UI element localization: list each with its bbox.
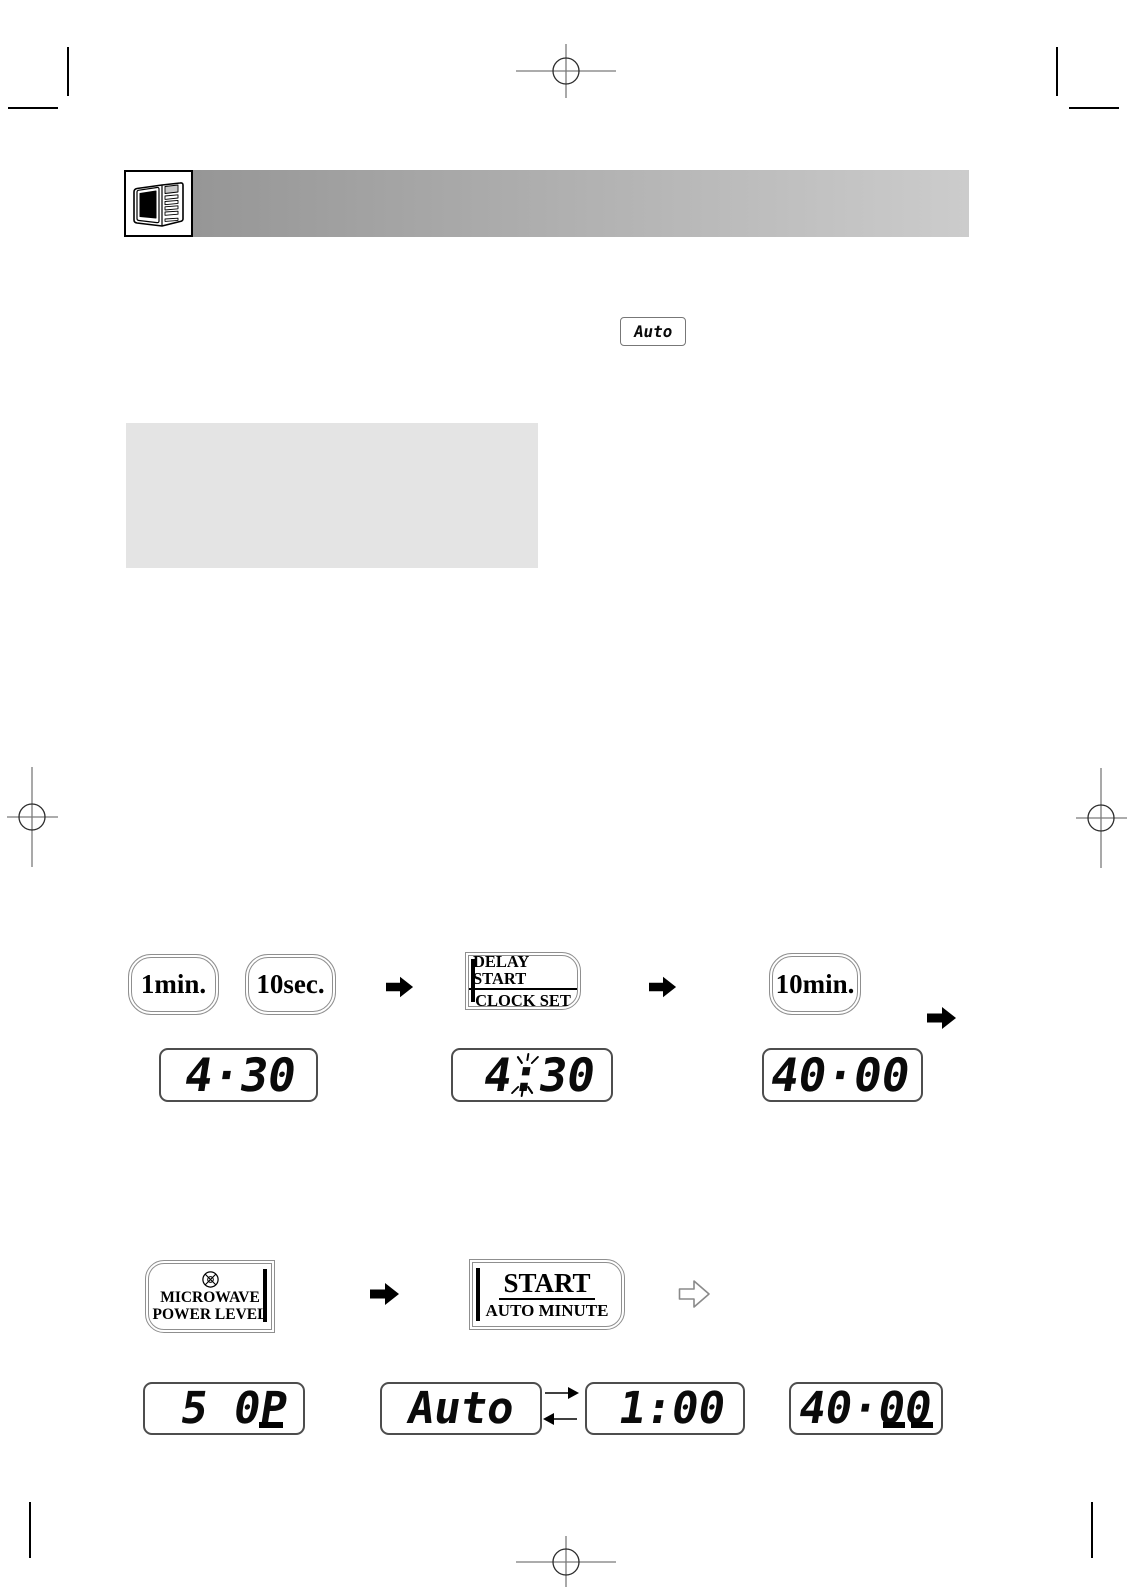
toggle-arrow-right-icon: [545, 1387, 579, 1399]
registration-mark-top-icon: [516, 21, 616, 121]
display-cook-time-value: 4·30: [181, 1048, 300, 1102]
registration-mark-right-icon: [1051, 768, 1127, 868]
manual-page: Auto 1min. 10sec. DELAY START CLOCK SET …: [0, 0, 1127, 1587]
button-start-auto-minute: START AUTO MINUTE: [472, 1262, 622, 1327]
display-time-value: 1:00: [615, 1383, 729, 1434]
crop-mark-top-left-v: [67, 47, 69, 96]
button-delay-label-1: DELAY START: [469, 953, 577, 991]
underline-cursor: [883, 1422, 905, 1428]
button-10sec: 10sec.: [248, 957, 333, 1012]
button-power-side-bar: [263, 1269, 267, 1322]
display-auto: Auto: [380, 1382, 542, 1435]
power-level-icon: [201, 1270, 220, 1289]
auto-indicator: Auto: [620, 317, 686, 346]
display-delay-final: 40·00: [789, 1382, 943, 1435]
crop-mark-bottom-right-v: [1091, 1502, 1093, 1558]
underline-cursor: [911, 1422, 933, 1428]
button-start-label-1: START: [499, 1269, 594, 1300]
button-microwave-power-level: MICROWAVE POWER LEVEL: [148, 1263, 272, 1330]
crop-mark-top-left-h: [8, 107, 58, 109]
display-delay-time-value: 40·00: [766, 1048, 913, 1102]
registration-mark-left-icon: [0, 767, 82, 867]
button-10min-label: 10min.: [776, 969, 855, 1000]
arrow-right-outline-icon: [678, 1279, 711, 1309]
button-power-label-2: POWER LEVEL: [153, 1307, 268, 1323]
crop-mark-top-right-h: [1069, 107, 1119, 109]
header-gradient-bar: [193, 170, 969, 237]
arrow-right-icon: [927, 1006, 957, 1030]
microwave-icon: [128, 175, 190, 233]
underline-cursor: [259, 1422, 283, 1428]
button-delay-label-2: CLOCK SET: [475, 990, 571, 1009]
button-1min: 1min.: [131, 957, 216, 1012]
display-power-level: 5 0P: [143, 1382, 305, 1435]
display-auto-value: Auto: [404, 1383, 518, 1434]
header-icon-box: [124, 170, 193, 237]
button-delay-start-clock-set: DELAY START CLOCK SET: [468, 955, 578, 1007]
display-time: 1:00: [585, 1382, 745, 1435]
button-power-label-1: MICROWAVE: [160, 1290, 260, 1306]
button-start-label-2: AUTO MINUTE: [486, 1300, 609, 1320]
crop-mark-top-right-v: [1056, 47, 1058, 96]
arrow-right-icon: [649, 975, 677, 999]
display-delay-time: 40·00: [762, 1048, 923, 1102]
display-clock-flashing: 4:30: [451, 1048, 613, 1102]
auto-indicator-text: Auto: [632, 322, 674, 341]
registration-mark-bottom-icon: [516, 1512, 616, 1587]
button-10min: 10min.: [772, 956, 858, 1012]
clock-minute-digits: 30: [535, 1048, 599, 1102]
button-1min-label: 1min.: [141, 969, 206, 1000]
button-delay-side-bar: [471, 959, 475, 1002]
toggle-arrow-left-icon: [543, 1413, 577, 1425]
note-box: [126, 423, 538, 568]
button-start-side-bar: [476, 1268, 480, 1321]
button-10sec-label: 10sec.: [256, 969, 324, 1000]
arrow-right-icon: [386, 975, 414, 999]
display-cook-time: 4·30: [159, 1048, 318, 1102]
arrow-right-icon: [370, 1281, 400, 1307]
crop-mark-bottom-left-v: [29, 1502, 31, 1558]
